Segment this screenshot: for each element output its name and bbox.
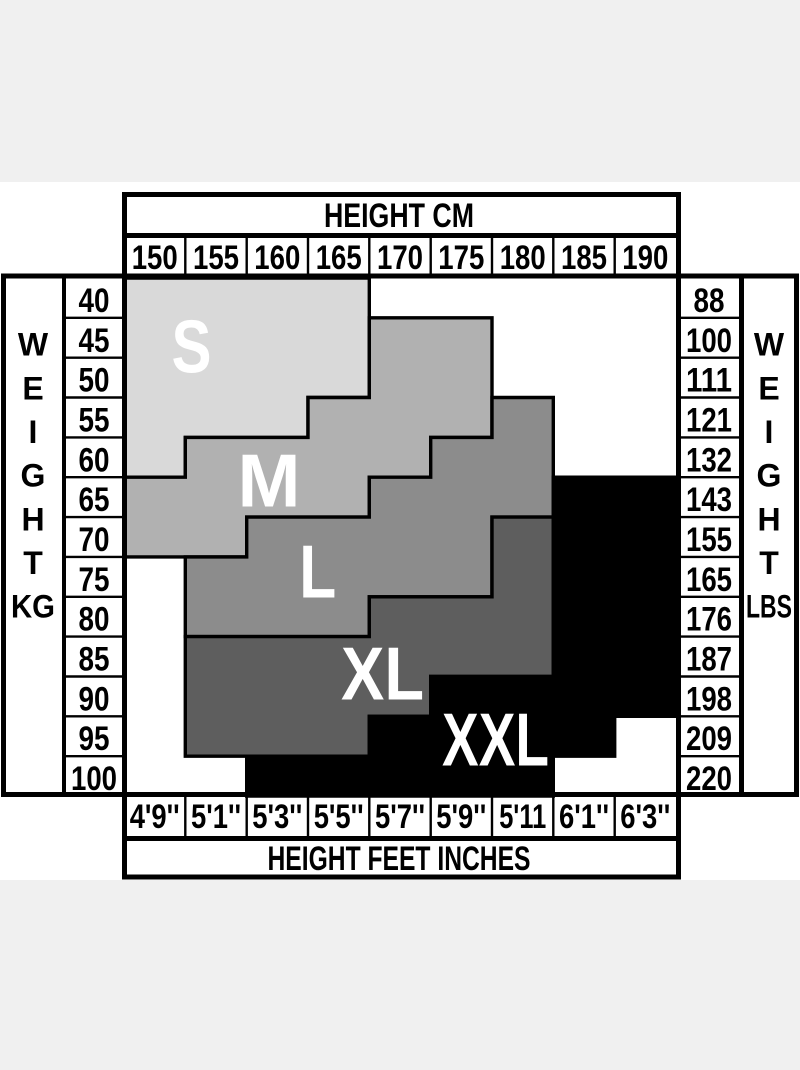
svg-text:160: 160 [254,239,300,277]
svg-text:100: 100 [71,760,117,798]
svg-text:165: 165 [686,561,732,599]
svg-text:W: W [754,327,785,363]
svg-text:121: 121 [686,402,732,440]
svg-text:50: 50 [79,362,110,400]
svg-text:220: 220 [686,760,732,798]
svg-text:6'1'': 6'1'' [559,798,609,836]
svg-text:5'7'': 5'7'' [375,798,425,836]
svg-text:198: 198 [686,680,732,718]
svg-text:T: T [759,545,779,581]
svg-text:5'3'': 5'3'' [252,798,302,836]
svg-text:175: 175 [438,239,484,277]
svg-text:180: 180 [500,239,546,277]
svg-text:I: I [765,414,774,450]
svg-text:6'3'': 6'3'' [620,798,670,836]
svg-text:E: E [758,370,779,406]
svg-text:176: 176 [686,601,732,639]
svg-text:90: 90 [79,680,110,718]
svg-text:75: 75 [79,561,110,599]
svg-text:G: G [21,458,46,494]
svg-text:170: 170 [377,239,423,277]
svg-text:KG: KG [11,589,55,625]
svg-text:111: 111 [686,362,732,400]
svg-text:187: 187 [686,641,732,679]
svg-text:55: 55 [79,402,110,440]
svg-text:I: I [29,414,38,450]
svg-text:70: 70 [79,521,110,559]
svg-text:165: 165 [316,239,362,277]
svg-text:100: 100 [686,322,732,360]
svg-text:4'9'': 4'9'' [130,798,180,836]
svg-text:95: 95 [79,720,110,758]
svg-text:150: 150 [132,239,178,277]
svg-text:XXL: XXL [442,698,549,782]
svg-text:85: 85 [79,641,110,679]
svg-text:132: 132 [686,441,732,479]
svg-text:T: T [23,545,43,581]
svg-text:5'1'': 5'1'' [191,798,241,836]
svg-text:80: 80 [79,601,110,639]
svg-text:M: M [238,439,301,523]
svg-text:XL: XL [341,632,424,716]
svg-text:185: 185 [561,239,607,277]
svg-text:HEIGHT CM: HEIGHT CM [324,197,474,235]
svg-text:G: G [757,458,782,494]
svg-text:60: 60 [79,441,110,479]
svg-text:65: 65 [79,481,110,519]
svg-text:190: 190 [622,239,668,277]
svg-text:H: H [757,501,780,537]
svg-text:HEIGHT FEET INCHES: HEIGHT FEET INCHES [268,840,531,878]
svg-text:H: H [21,501,44,537]
svg-text:45: 45 [79,322,110,360]
svg-text:5'5'': 5'5'' [314,798,364,836]
svg-text:S: S [172,305,212,389]
svg-text:LBS: LBS [746,589,792,625]
svg-text:W: W [18,327,49,363]
svg-text:88: 88 [694,282,725,320]
svg-text:155: 155 [686,521,732,559]
svg-text:E: E [22,370,43,406]
svg-text:5'9'': 5'9'' [436,798,486,836]
svg-text:L: L [299,530,336,614]
svg-text:5'11: 5'11 [499,798,546,836]
svg-text:155: 155 [193,239,239,277]
svg-text:40: 40 [79,282,110,320]
svg-text:209: 209 [686,720,732,758]
svg-text:143: 143 [686,481,732,519]
